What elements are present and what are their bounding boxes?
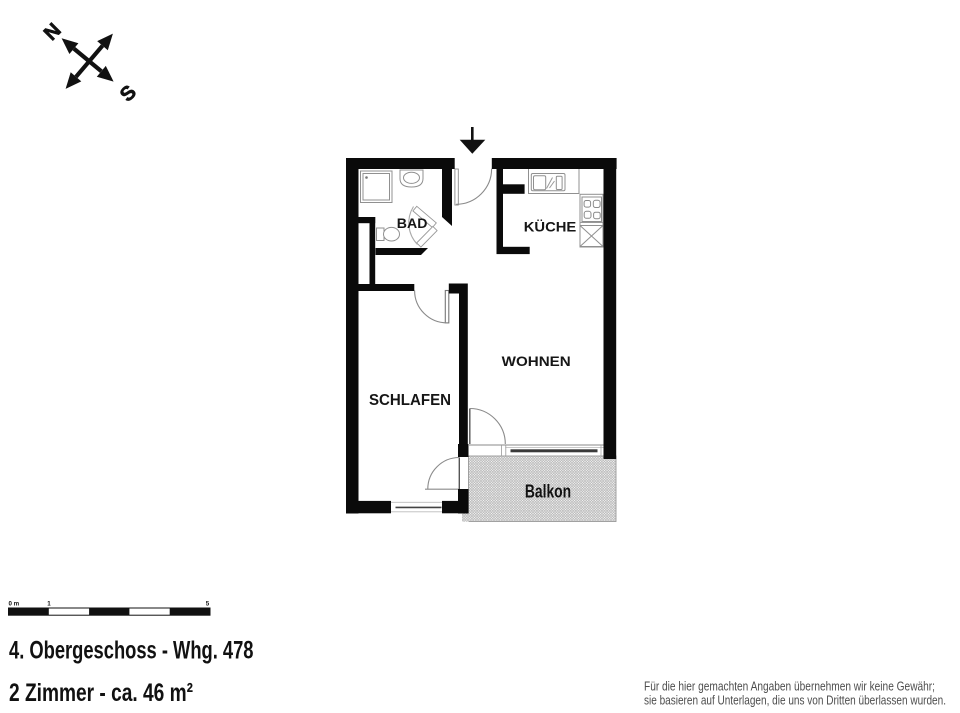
- svg-text:SCHLAFEN: SCHLAFEN: [369, 392, 451, 409]
- svg-text:1: 1: [47, 601, 51, 608]
- svg-text:BAD: BAD: [397, 215, 428, 231]
- svg-text:WOHNEN: WOHNEN: [502, 354, 571, 369]
- svg-text:Balkon: Balkon: [525, 481, 571, 501]
- svg-text:KÜCHE: KÜCHE: [524, 219, 577, 234]
- svg-text:5: 5: [206, 601, 210, 608]
- svg-text:4. Obergeschoss - Whg. 478: 4. Obergeschoss - Whg. 478: [9, 637, 254, 665]
- svg-text:S: S: [116, 81, 141, 106]
- svg-text:0 m: 0 m: [9, 601, 20, 608]
- svg-text:Für die hier gemachten Angaben: Für die hier gemachten Angaben übernehme…: [644, 680, 935, 694]
- svg-text:2 Zimmer - ca. 46 m²: 2 Zimmer - ca. 46 m²: [9, 679, 193, 707]
- svg-text:sie basieren auf Unterlagen, d: sie basieren auf Unterlagen, die uns von…: [644, 693, 946, 707]
- svg-text:N: N: [40, 19, 66, 45]
